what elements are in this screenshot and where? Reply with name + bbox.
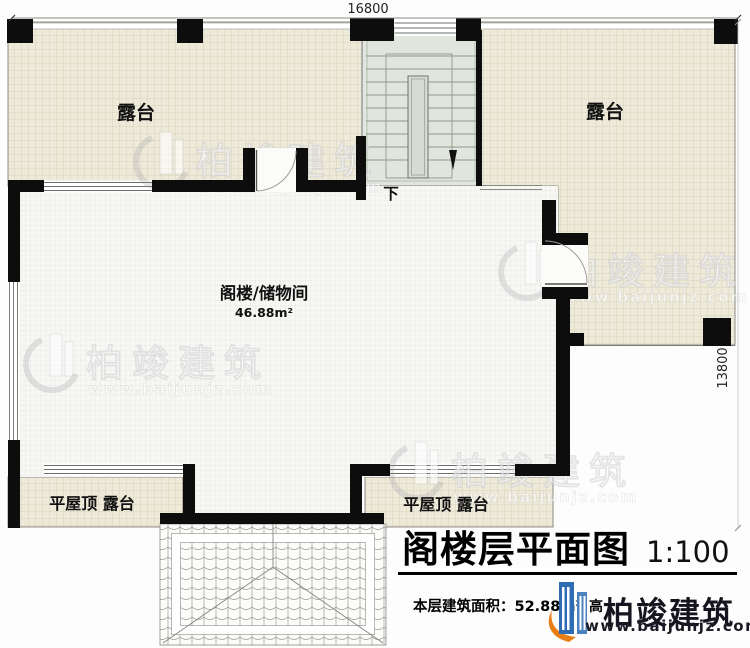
brand-url: www.baijunjz.com — [585, 617, 750, 635]
terrace-left-label: 露台 — [117, 101, 155, 124]
title-row: 阁楼层平面图 1:100 — [398, 528, 750, 572]
column — [350, 18, 394, 41]
stairs-down-label: 下 — [383, 185, 399, 203]
room-name-label: 阁楼/储物间 — [220, 283, 309, 303]
porch-roof — [160, 524, 386, 645]
watermark-brand: 柏竣建筑 — [561, 250, 745, 293]
plan-title: 阁楼层平面图 — [402, 528, 630, 572]
dimension-top-value: 16800 — [347, 2, 388, 17]
watermark-url: www.baijunjz.com — [88, 380, 273, 398]
flat-roof-terrace-left-label: 平屋顶 露台 — [49, 494, 135, 513]
brand-logo-icon — [543, 580, 591, 646]
stair-stringer — [408, 76, 428, 178]
door-right — [542, 241, 588, 287]
room-area-label: 46.88m² — [235, 305, 293, 320]
door-top — [255, 148, 296, 192]
plan-scale: 1:100 — [646, 535, 730, 569]
floor-area-label: 本层建筑面积： — [413, 599, 515, 615]
flat-roof-terrace-right-label: 平屋顶 露台 — [403, 495, 489, 514]
watermark-brand: 柏竣建筑 — [86, 342, 270, 385]
terrace-right-label: 露台 — [586, 100, 624, 123]
column — [714, 19, 738, 44]
floor-plan-page: 柏竣建筑 www.baijunjz.com 柏竣建筑 www.baijunjz.… — [0, 0, 750, 648]
column — [177, 19, 203, 43]
title-block: 阁楼层平面图 1:100 本层建筑面积：52.88m² 高 柏竣建筑 www.b… — [398, 528, 750, 648]
watermark-url: www.baijunjz.com — [563, 288, 748, 306]
porch-wall-band — [160, 513, 384, 524]
partially-hidden-text: 高 — [589, 596, 603, 616]
dimension-right-value: 13800 — [716, 347, 731, 388]
column — [703, 318, 731, 346]
title-underline — [398, 572, 737, 575]
logo-tower-main — [559, 582, 574, 634]
column — [7, 19, 33, 43]
